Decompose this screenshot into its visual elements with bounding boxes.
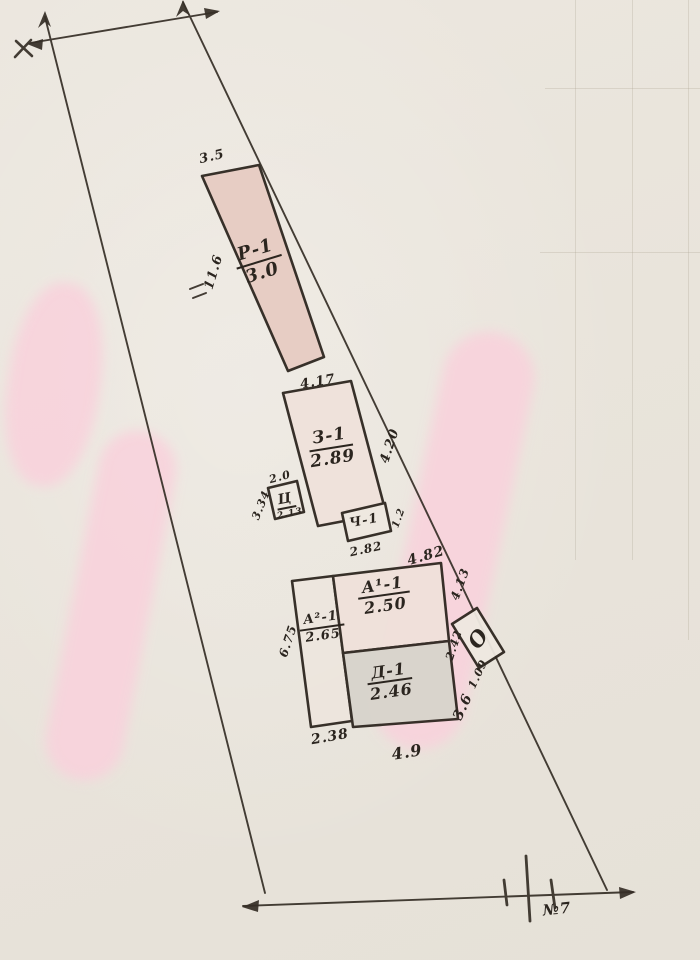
- building-label-z1: З-1 2.89: [305, 424, 356, 473]
- plan-drawing: [0, 0, 700, 960]
- plot-plan-sheet: Р-1 3.0 З-1 2.89 Ц Ч-1 А¹-1 2.50 А²-1 2.…: [0, 0, 700, 960]
- building-label-ts: Ц: [274, 489, 295, 508]
- building-label-d1: Д-1 2.46: [365, 659, 415, 705]
- bottom-dimension-line: [243, 892, 633, 906]
- left-boundary-line: [45, 17, 265, 893]
- left-boundary-arrow-icon: [38, 11, 51, 28]
- building-label-a1: А¹-1 2.50: [356, 573, 413, 620]
- top-dim-right-arrow-icon: [204, 8, 220, 19]
- plot-number-label: №7: [542, 899, 572, 920]
- building-label-a2: А²-1 2.65: [298, 609, 347, 648]
- x-mark: [15, 40, 32, 57]
- top-dimension-line: [30, 12, 217, 43]
- bottom-left-arrow-icon: [242, 900, 259, 912]
- bottom-right-arrow-icon: [619, 887, 636, 899]
